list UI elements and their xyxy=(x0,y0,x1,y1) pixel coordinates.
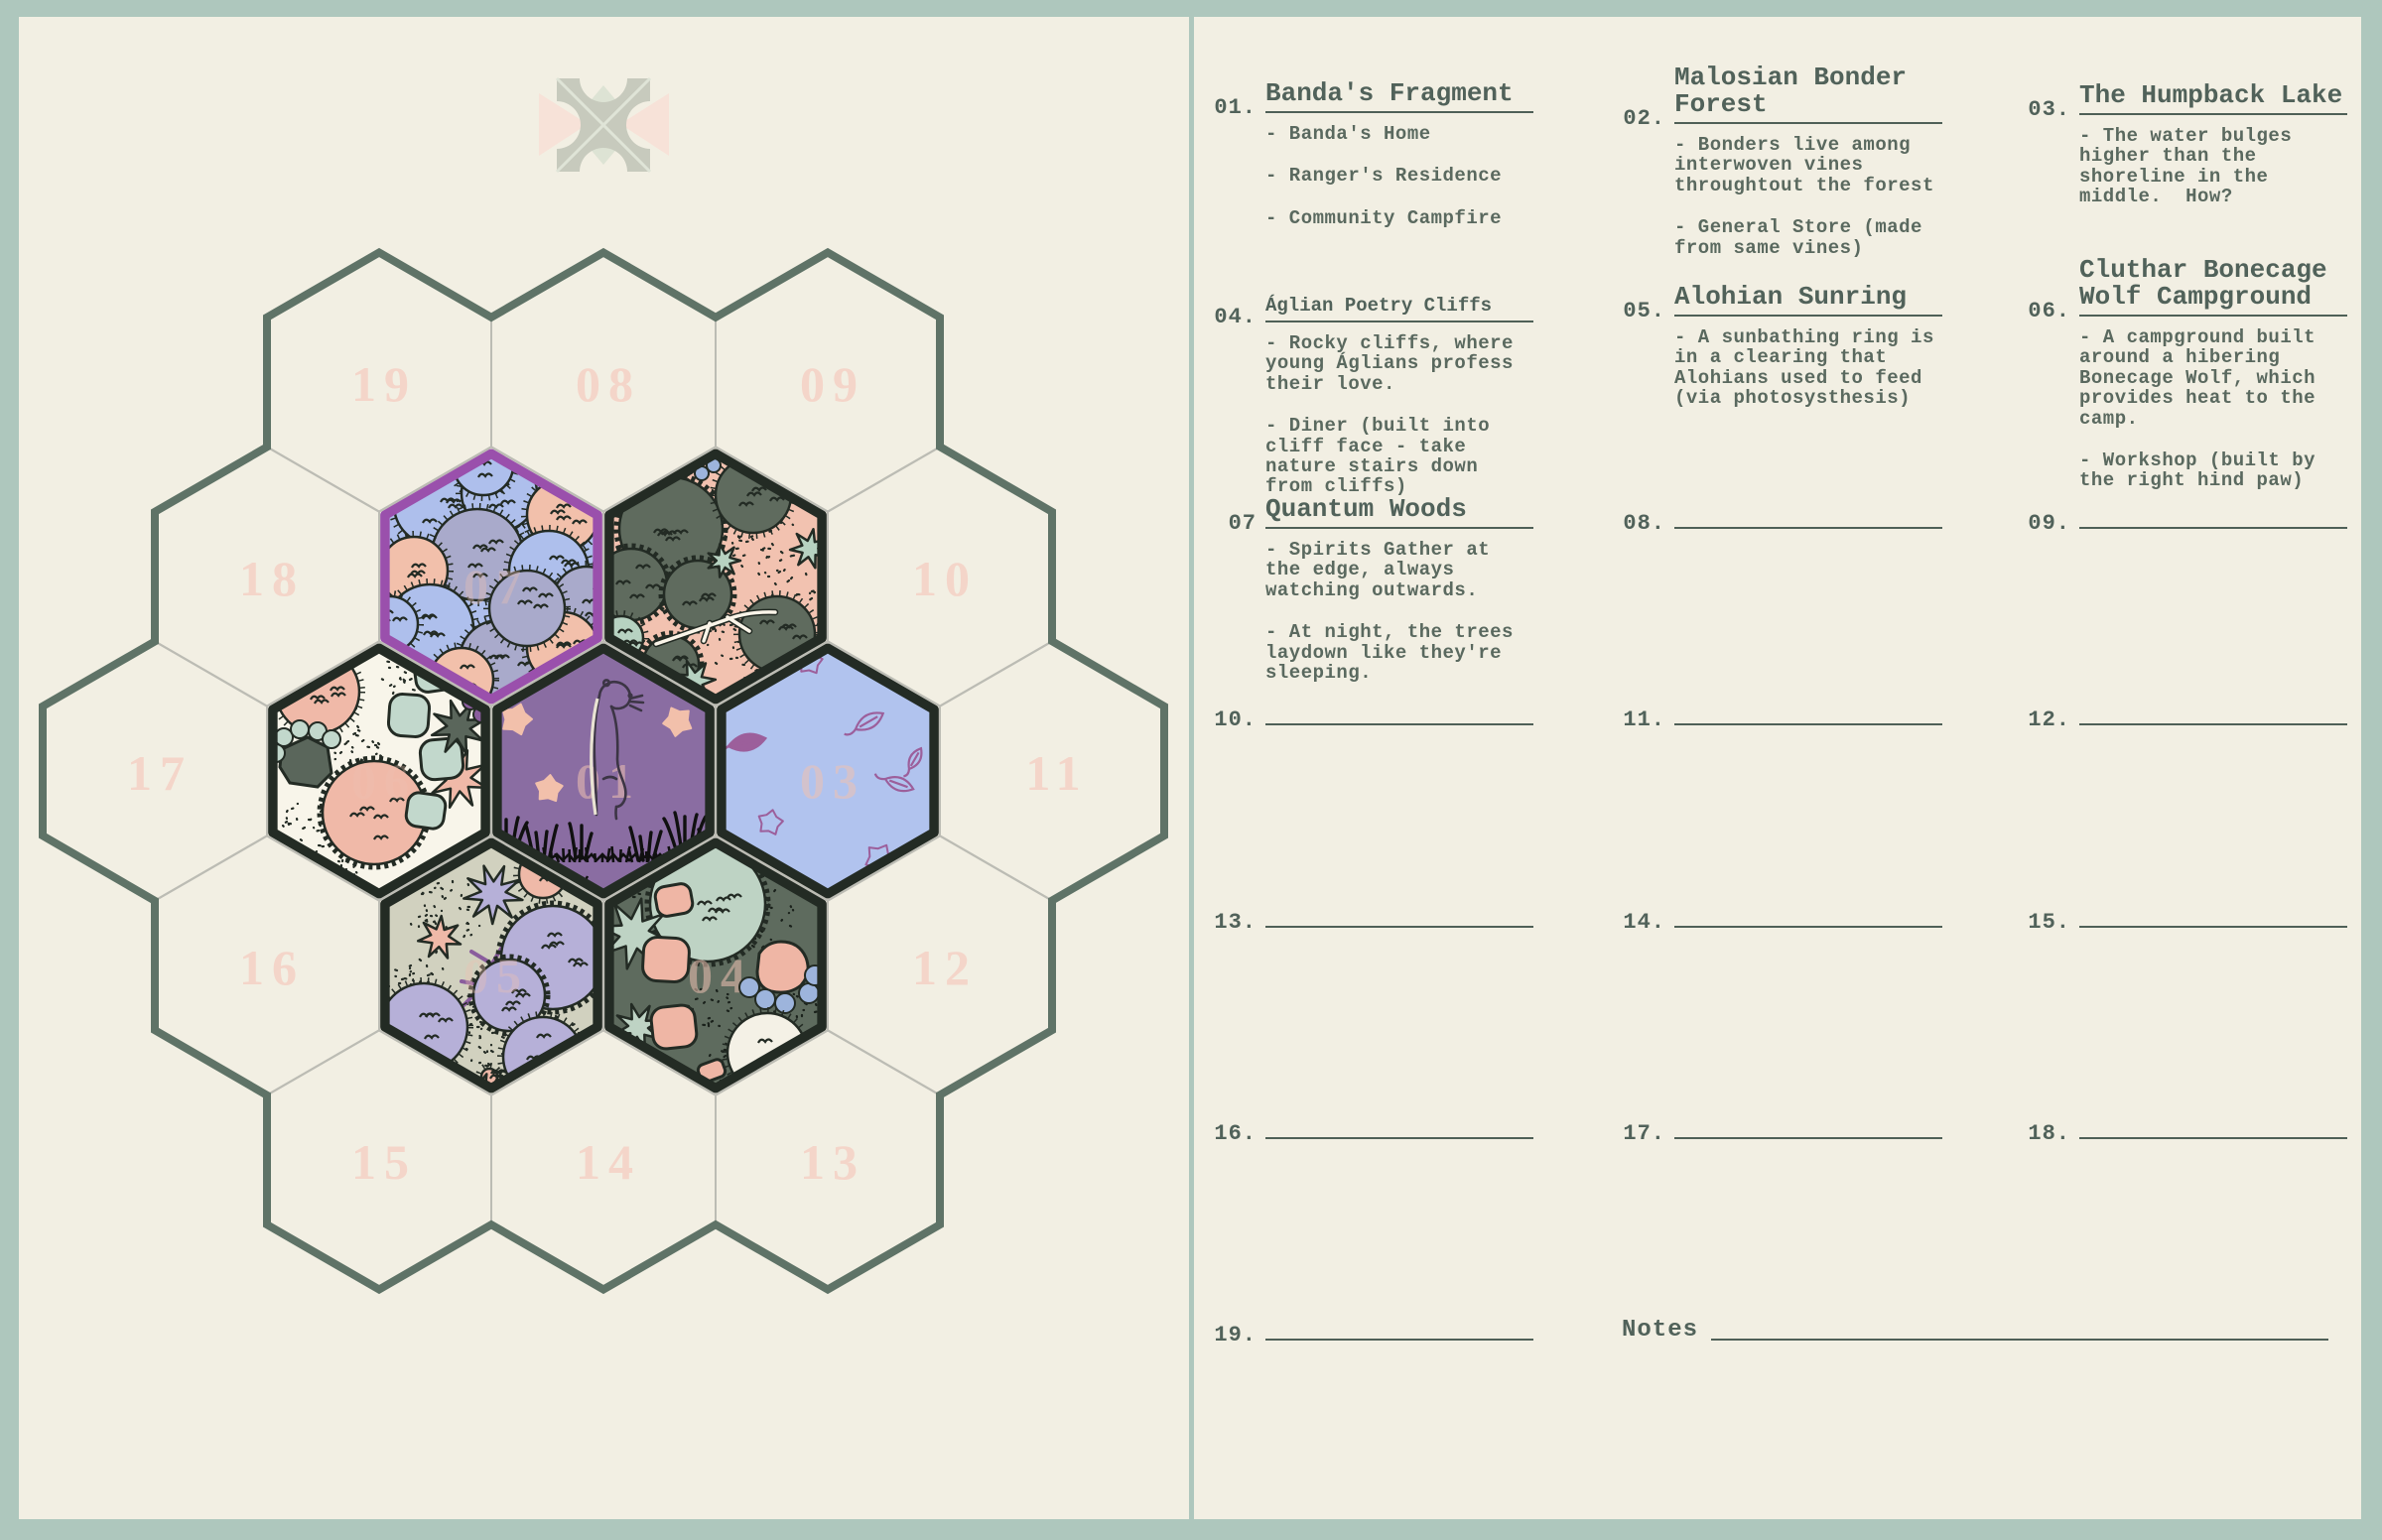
svg-text:13: 13 xyxy=(800,1134,865,1190)
svg-text:07: 07 xyxy=(463,559,529,614)
svg-text:10: 10 xyxy=(912,551,978,606)
svg-text:15: 15 xyxy=(351,1134,417,1190)
svg-text:11: 11 xyxy=(1025,745,1088,801)
svg-text:18: 18 xyxy=(239,551,305,606)
svg-text:14: 14 xyxy=(576,1134,641,1190)
svg-text:03: 03 xyxy=(800,753,865,809)
svg-text:16: 16 xyxy=(239,940,305,995)
svg-text:05: 05 xyxy=(463,948,529,1003)
svg-text:09: 09 xyxy=(800,356,865,412)
svg-text:17: 17 xyxy=(127,745,193,801)
svg-text:08: 08 xyxy=(576,356,641,412)
svg-text:12: 12 xyxy=(912,940,978,995)
svg-text:01: 01 xyxy=(576,753,641,809)
svg-text:19: 19 xyxy=(351,356,417,412)
svg-text:06: 06 xyxy=(351,753,417,809)
